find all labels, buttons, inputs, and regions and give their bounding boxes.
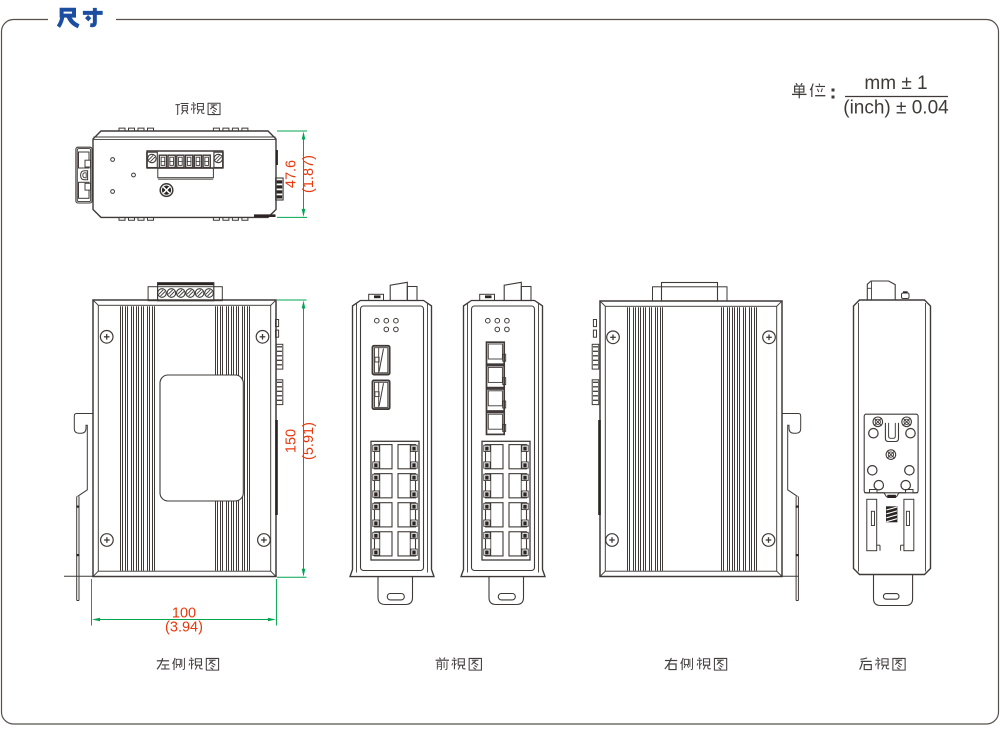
svg-text:(5.91): (5.91)	[301, 422, 317, 460]
svg-text:(inch) ± 0.04: (inch) ± 0.04	[843, 98, 949, 119]
svg-text:47.6: 47.6	[284, 160, 300, 188]
svg-text:(1.87): (1.87)	[301, 155, 317, 193]
svg-text:(3.94): (3.94)	[165, 620, 203, 636]
svg-text:150: 150	[284, 429, 300, 453]
svg-text:mm ± 1: mm ± 1	[864, 73, 927, 94]
